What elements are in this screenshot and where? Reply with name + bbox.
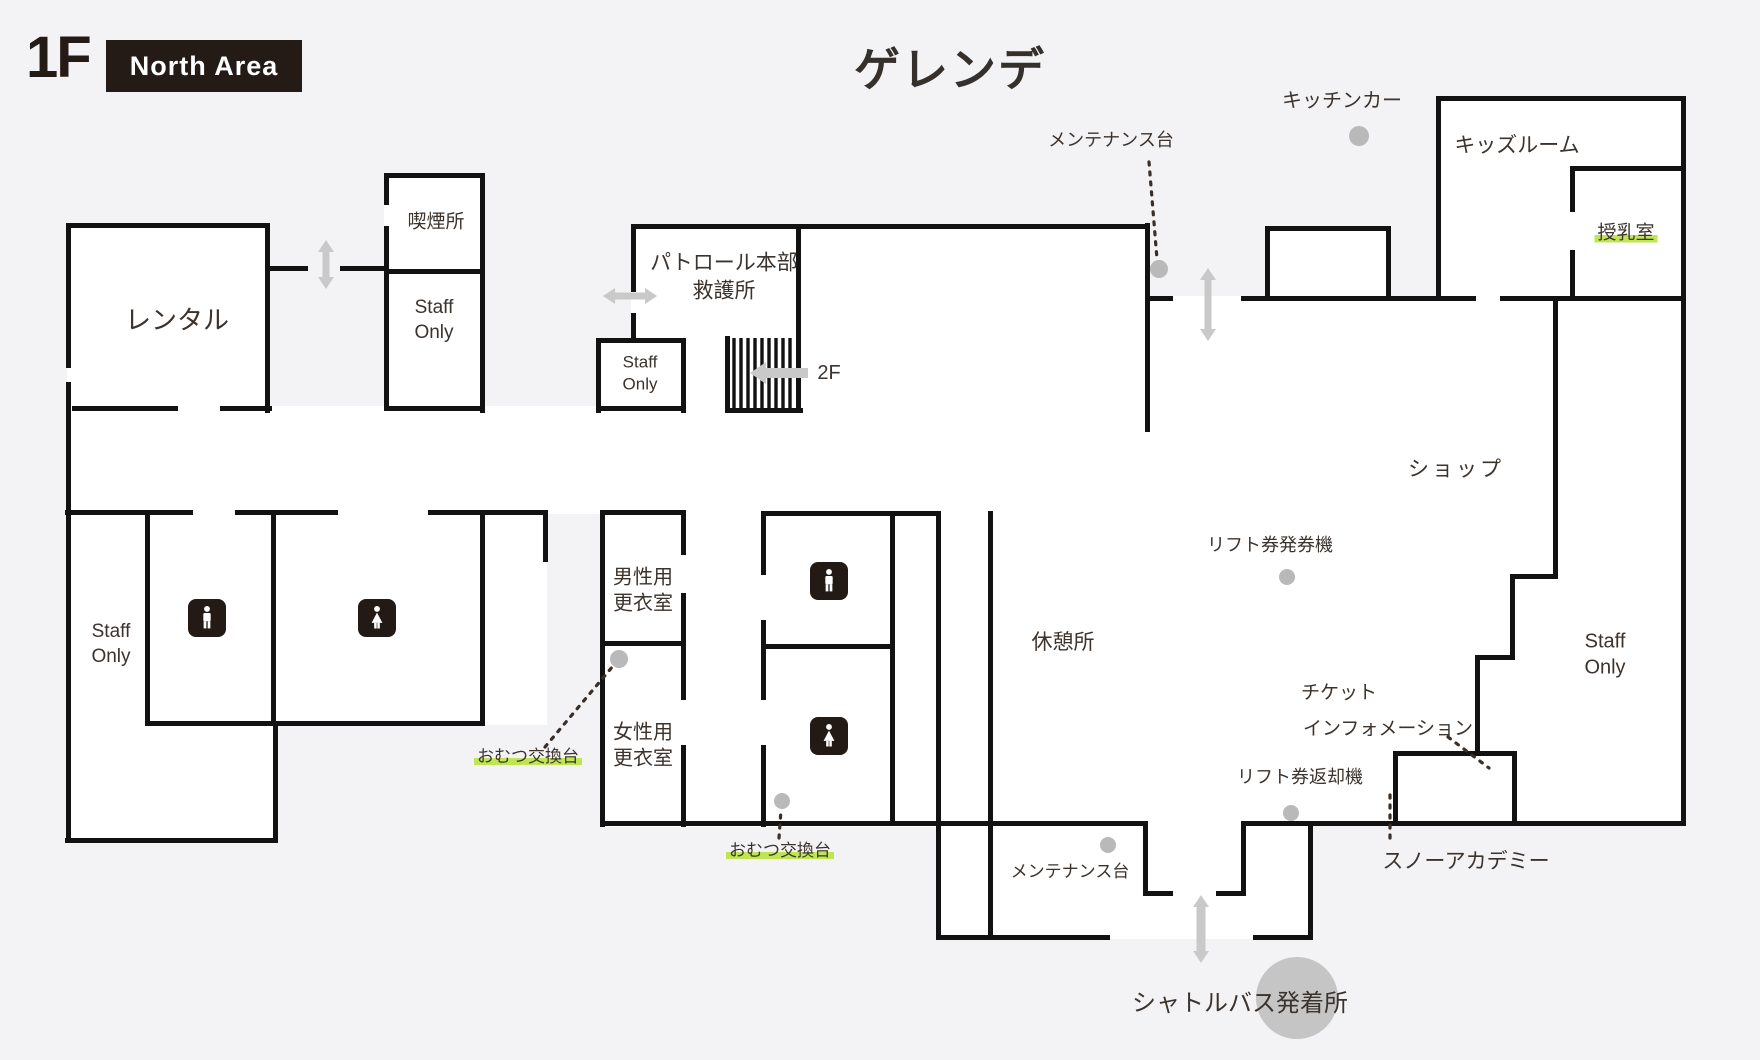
ticket-info-label-line1: チケット — [1301, 680, 1377, 705]
central-block — [600, 510, 940, 827]
lower-left-toilets — [275, 510, 547, 725]
mens-changing-label: 男性用 更衣室 — [613, 565, 673, 618]
lower-left-block — [67, 510, 277, 842]
smoking-label: 喫煙所 — [407, 209, 464, 234]
nursing-room-label: 授乳室 — [1594, 220, 1657, 245]
woman-pictogram — [816, 723, 842, 749]
lift-ticket-machine-label: リフト券発券機 — [1207, 534, 1333, 558]
snow-academy-label: スノーアカデミー — [1382, 848, 1549, 876]
entrance-alcove — [1265, 226, 1391, 300]
floor-label: 1F — [26, 24, 90, 91]
nursing-room-text: 授乳室 — [1594, 222, 1657, 243]
maintenance-stand-top-label: メンテナンス台 — [1048, 129, 1174, 153]
shuttle-bus-label: シャトルバス発着所 — [1132, 988, 1348, 1020]
map-title: ゲレンデ — [854, 40, 1046, 101]
mens-toilet-icon-2 — [810, 562, 848, 600]
diaper-right-text: おむつ交換台 — [726, 841, 834, 860]
staff-only-label-2: Staff Only — [623, 352, 658, 397]
maintenance-stand-bottom-label: メンテナンス台 — [1011, 861, 1130, 883]
patrol-hq-label: パトロール本部 救護所 — [650, 249, 798, 304]
womens-toilet-icon-2 — [810, 717, 848, 755]
staff-only-label-4: Staff Only — [91, 619, 130, 669]
main-hall — [936, 296, 1685, 825]
womens-toilet-icon — [358, 599, 396, 637]
man-pictogram — [816, 568, 842, 594]
area-badge-label: North Area — [130, 51, 279, 82]
staff-only-label-1: Staff Only — [414, 295, 453, 345]
kitchen-car-dot — [1349, 126, 1369, 146]
staff-only-label-3: Staff Only — [1584, 629, 1625, 682]
ticket-info-label-line2: インフォメーション — [1303, 716, 1473, 741]
lift-ticket-return-label: リフト券返却機 — [1237, 766, 1363, 790]
maintenance-top-leader — [1149, 162, 1157, 259]
diaper-station-right-label: おむつ交換台 — [726, 840, 834, 862]
woman-pictogram — [364, 605, 390, 631]
rest-area-label: 休憩所 — [1032, 629, 1095, 657]
door-arrow-vertical-icon — [318, 240, 334, 289]
area-badge: North Area — [106, 40, 302, 92]
diaper-station-left-label: おむつ交換台 — [474, 746, 582, 768]
rental-label: レンタル — [125, 303, 229, 337]
kids-room-label: キッズルーム — [1454, 132, 1579, 160]
corridor-band — [67, 406, 940, 514]
maintenance-top-dot — [1150, 260, 1168, 278]
diaper-left-text: おむつ交換台 — [474, 747, 582, 766]
floor-map: 1F North Area ゲレンデ レンタル 喫煙所 Staff Only S… — [0, 0, 1760, 1060]
kids-room-block — [1436, 96, 1685, 302]
womens-changing-label: 女性用 更衣室 — [613, 720, 673, 773]
stairs-2f-label: 2F — [817, 360, 840, 386]
mens-toilet-icon — [188, 599, 226, 637]
shop-label: ショップ — [1408, 456, 1504, 484]
kitchen-car-label: キッチンカー — [1282, 88, 1402, 114]
man-pictogram — [194, 605, 220, 631]
